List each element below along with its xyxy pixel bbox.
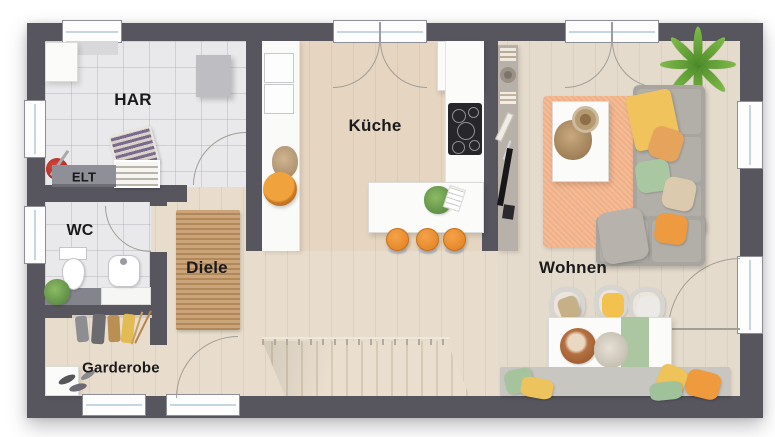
copper-bowl bbox=[560, 328, 596, 364]
dining-chair bbox=[594, 285, 628, 321]
window-living-right bbox=[737, 101, 763, 169]
bar-stool bbox=[386, 228, 409, 251]
terrace-door-right bbox=[737, 256, 763, 334]
wc-vanity bbox=[101, 287, 151, 305]
patio-door-living bbox=[565, 20, 659, 43]
wc-plant bbox=[44, 279, 70, 305]
room-label-kueche: Küche bbox=[349, 116, 402, 136]
floorplan-scene: HAR ELT WC Diele Garderobe Küche Wohnen bbox=[0, 0, 775, 437]
flowers-white bbox=[594, 332, 628, 368]
room-label-wc: WC bbox=[66, 222, 93, 240]
wall-right bbox=[740, 23, 763, 418]
window-har-top bbox=[62, 20, 122, 43]
blanket-gray bbox=[596, 206, 650, 265]
cooktop bbox=[448, 103, 482, 155]
window-glass bbox=[86, 404, 142, 406]
bar-stool bbox=[416, 228, 439, 251]
wall-wc-hall bbox=[150, 252, 167, 345]
room-label-har: HAR bbox=[114, 90, 151, 110]
coat-item bbox=[91, 314, 106, 345]
room-label-elt: ELT bbox=[72, 170, 96, 185]
door-leaf-terrace bbox=[668, 328, 740, 330]
room-label-wohnen: Wohnen bbox=[539, 258, 607, 278]
cooktop-burner bbox=[457, 122, 475, 140]
room-label-garderobe: Garderobe bbox=[82, 360, 160, 377]
chair-cushion-yellow bbox=[602, 293, 624, 317]
book-stack bbox=[500, 48, 516, 61]
cooktop-burner bbox=[469, 140, 480, 151]
window-glass bbox=[34, 210, 36, 260]
window-glass bbox=[749, 260, 751, 330]
window-har-left bbox=[24, 100, 46, 158]
har-storage-box bbox=[196, 55, 231, 97]
window-glass bbox=[66, 31, 118, 33]
sink-faucet bbox=[120, 258, 127, 265]
bar-stool bbox=[443, 228, 466, 251]
pillow-orange bbox=[653, 212, 689, 246]
decor-tray bbox=[572, 106, 599, 133]
cooktop-burner bbox=[452, 109, 466, 123]
cooktop-burner bbox=[468, 107, 479, 118]
book-stack bbox=[500, 92, 516, 104]
coat-item bbox=[107, 315, 120, 343]
door-mullion bbox=[379, 22, 381, 41]
wall-wc-top-stub bbox=[150, 185, 167, 206]
har-cabinet bbox=[45, 42, 78, 82]
window-glass bbox=[34, 104, 36, 154]
fruit-bowl bbox=[263, 172, 297, 206]
cooktop-burner bbox=[452, 141, 465, 154]
room-label-diele: Diele bbox=[186, 258, 228, 278]
window-garderobe-bottom bbox=[82, 394, 146, 416]
wall-kitchen-living bbox=[482, 41, 498, 251]
kitchen-appliance bbox=[264, 84, 294, 114]
door-panel-line bbox=[170, 404, 236, 406]
decor-vase bbox=[500, 67, 516, 83]
coat-item bbox=[75, 315, 90, 342]
door-mullion bbox=[611, 22, 613, 41]
window-wc-left bbox=[24, 206, 46, 264]
kitchen-appliance bbox=[264, 53, 294, 83]
window-glass bbox=[749, 105, 751, 165]
tv-stand bbox=[502, 204, 515, 219]
drying-rack bbox=[114, 160, 160, 188]
patio-door-kitchen bbox=[333, 20, 427, 43]
